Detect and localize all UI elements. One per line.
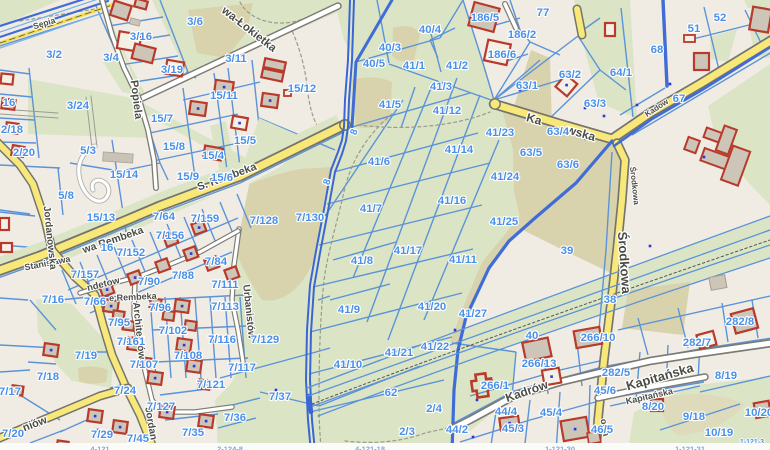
svg-text:15/7: 15/7 [151,113,173,125]
svg-text:2/3: 2/3 [399,426,415,438]
svg-text:7/161: 7/161 [117,336,146,348]
svg-text:7/128: 7/128 [250,215,279,227]
svg-text:7/18: 7/18 [37,371,59,383]
svg-text:3/16: 3/16 [130,31,152,43]
svg-text:8/19: 8/19 [715,370,737,382]
svg-text:41/20: 41/20 [418,301,447,313]
svg-text:7/20: 7/20 [2,428,24,440]
svg-text:9/18: 9/18 [683,411,705,423]
svg-text:2-124-8: 2-124-8 [217,445,243,450]
svg-text:2/4: 2/4 [426,403,442,415]
svg-text:63/6: 63/6 [557,159,579,171]
svg-text:15/6: 15/6 [211,172,233,184]
svg-text:41/5: 41/5 [379,99,402,111]
svg-text:1-121-30: 1-121-30 [545,445,575,450]
svg-text:7/16: 7/16 [42,294,64,306]
svg-text:10/20: 10/20 [745,407,770,419]
svg-text:7/121: 7/121 [197,379,226,391]
svg-text:10/19: 10/19 [705,427,734,439]
svg-text:7/36: 7/36 [224,412,246,424]
svg-text:7/157: 7/157 [71,269,100,281]
svg-text:44/2: 44/2 [446,424,468,436]
svg-text:41/24: 41/24 [491,171,520,183]
svg-text:266/13: 266/13 [522,358,557,370]
svg-text:266/10: 266/10 [581,332,616,344]
svg-text:7/35: 7/35 [182,427,205,439]
svg-text:7/29: 7/29 [91,429,113,441]
svg-text:39: 39 [561,245,574,257]
svg-text:40: 40 [526,330,539,342]
svg-text:1-121-31: 1-121-31 [675,445,705,450]
svg-text:15/12: 15/12 [288,83,317,95]
svg-text:7/95: 7/95 [108,317,131,329]
svg-text:7/111: 7/111 [211,279,239,291]
svg-text:40/5: 40/5 [363,58,386,70]
svg-text:7/66: 7/66 [84,296,106,308]
svg-text:15/11: 15/11 [210,90,239,102]
svg-text:282/7: 282/7 [683,337,712,349]
svg-text:63/5: 63/5 [520,147,543,159]
svg-text:41/21: 41/21 [385,347,414,359]
svg-text:7/108: 7/108 [174,350,203,362]
svg-text:64/1: 64/1 [610,67,633,79]
svg-text:7/19: 7/19 [75,350,97,362]
svg-text:186/6: 186/6 [488,49,517,61]
svg-text:63/3: 63/3 [584,98,606,110]
svg-text:7/156: 7/156 [156,230,185,242]
svg-text:38: 38 [604,294,617,306]
svg-text:41/8: 41/8 [351,255,373,267]
svg-text:45/3: 45/3 [502,423,524,435]
svg-text:3/4: 3/4 [103,52,119,64]
svg-text:41/7: 41/7 [360,203,382,215]
svg-text:2/18: 2/18 [1,124,23,136]
svg-text:7/113: 7/113 [211,301,239,313]
svg-text:41/1: 41/1 [403,60,426,72]
svg-text:7/37: 7/37 [269,391,291,403]
svg-text:62: 62 [385,387,398,399]
svg-text:4-121-18: 4-121-18 [355,445,385,450]
svg-text:41/9: 41/9 [338,304,360,316]
svg-text:7/84: 7/84 [205,256,228,268]
svg-text:46/5: 46/5 [591,424,614,436]
svg-text:45/4: 45/4 [540,407,563,419]
svg-text:7/152: 7/152 [117,247,146,259]
svg-text:3/24: 3/24 [67,100,90,112]
svg-text:41/12: 41/12 [433,105,462,117]
svg-text:8/20: 8/20 [642,401,664,413]
svg-text:7/127: 7/127 [147,401,176,413]
svg-text:63/1: 63/1 [516,80,539,92]
svg-text:186/2: 186/2 [508,29,537,41]
svg-text:3/19: 3/19 [161,64,183,76]
svg-text:41/17: 41/17 [394,245,423,257]
svg-text:3/2: 3/2 [46,49,62,61]
svg-text:52: 52 [714,12,727,24]
svg-text:41/22: 41/22 [421,341,450,353]
svg-text:7/88: 7/88 [172,270,194,282]
svg-text:51: 51 [688,23,701,35]
svg-text:40/4: 40/4 [419,24,442,36]
svg-text:67: 67 [673,93,686,105]
svg-text:41/6: 41/6 [368,156,390,168]
svg-text:41/16: 41/16 [438,195,467,207]
svg-text:7/129: 7/129 [251,334,280,346]
svg-text:15/5: 15/5 [234,135,257,147]
svg-text:3/6: 3/6 [187,16,203,28]
svg-text:15/13: 15/13 [87,212,116,224]
svg-text:15/14: 15/14 [110,169,139,181]
svg-text:41/25: 41/25 [490,216,519,228]
svg-text:3/11: 3/11 [225,53,247,65]
svg-text:7/130: 7/130 [296,212,325,224]
svg-text:7/96: 7/96 [149,302,171,314]
svg-text:16: 16 [101,242,114,254]
svg-text:5/3: 5/3 [80,145,96,157]
svg-text:16: 16 [3,97,16,109]
svg-text:41/27: 41/27 [459,308,488,320]
svg-text:41/23: 41/23 [486,127,515,139]
svg-text:68: 68 [651,44,664,56]
svg-text:5/8: 5/8 [58,190,74,202]
svg-text:41/2: 41/2 [446,60,468,72]
svg-text:282/8: 282/8 [726,316,755,328]
svg-text:44/4: 44/4 [495,406,518,418]
svg-text:7/90: 7/90 [138,276,160,288]
svg-text:186/5: 186/5 [471,12,500,24]
svg-text:266/1: 266/1 [481,380,510,392]
svg-text:7/116: 7/116 [208,334,236,346]
svg-text:41/14: 41/14 [445,144,474,156]
svg-text:7/107: 7/107 [130,359,159,371]
svg-text:7/159: 7/159 [191,213,220,225]
svg-text:4-121: 4-121 [90,445,109,450]
svg-text:15/4: 15/4 [202,150,225,162]
svg-text:40/3: 40/3 [379,42,401,54]
svg-text:15/9: 15/9 [177,171,199,183]
svg-text:41/11: 41/11 [449,254,478,266]
svg-text:282/5: 282/5 [602,367,631,379]
svg-text:63/4: 63/4 [547,126,570,138]
svg-text:7/64: 7/64 [153,211,176,223]
svg-text:41/3: 41/3 [430,81,452,93]
svg-text:7/17: 7/17 [0,386,21,398]
svg-text:45/6: 45/6 [594,385,616,397]
svg-text:63/2: 63/2 [559,69,581,81]
svg-text:41/10: 41/10 [334,359,363,371]
svg-text:2/20: 2/20 [13,147,35,159]
svg-text:77: 77 [537,7,550,19]
svg-text:7/24: 7/24 [114,385,137,397]
svg-text:15/8: 15/8 [163,141,185,153]
svg-text:7/102: 7/102 [159,325,188,337]
svg-text:7/117: 7/117 [228,362,256,374]
